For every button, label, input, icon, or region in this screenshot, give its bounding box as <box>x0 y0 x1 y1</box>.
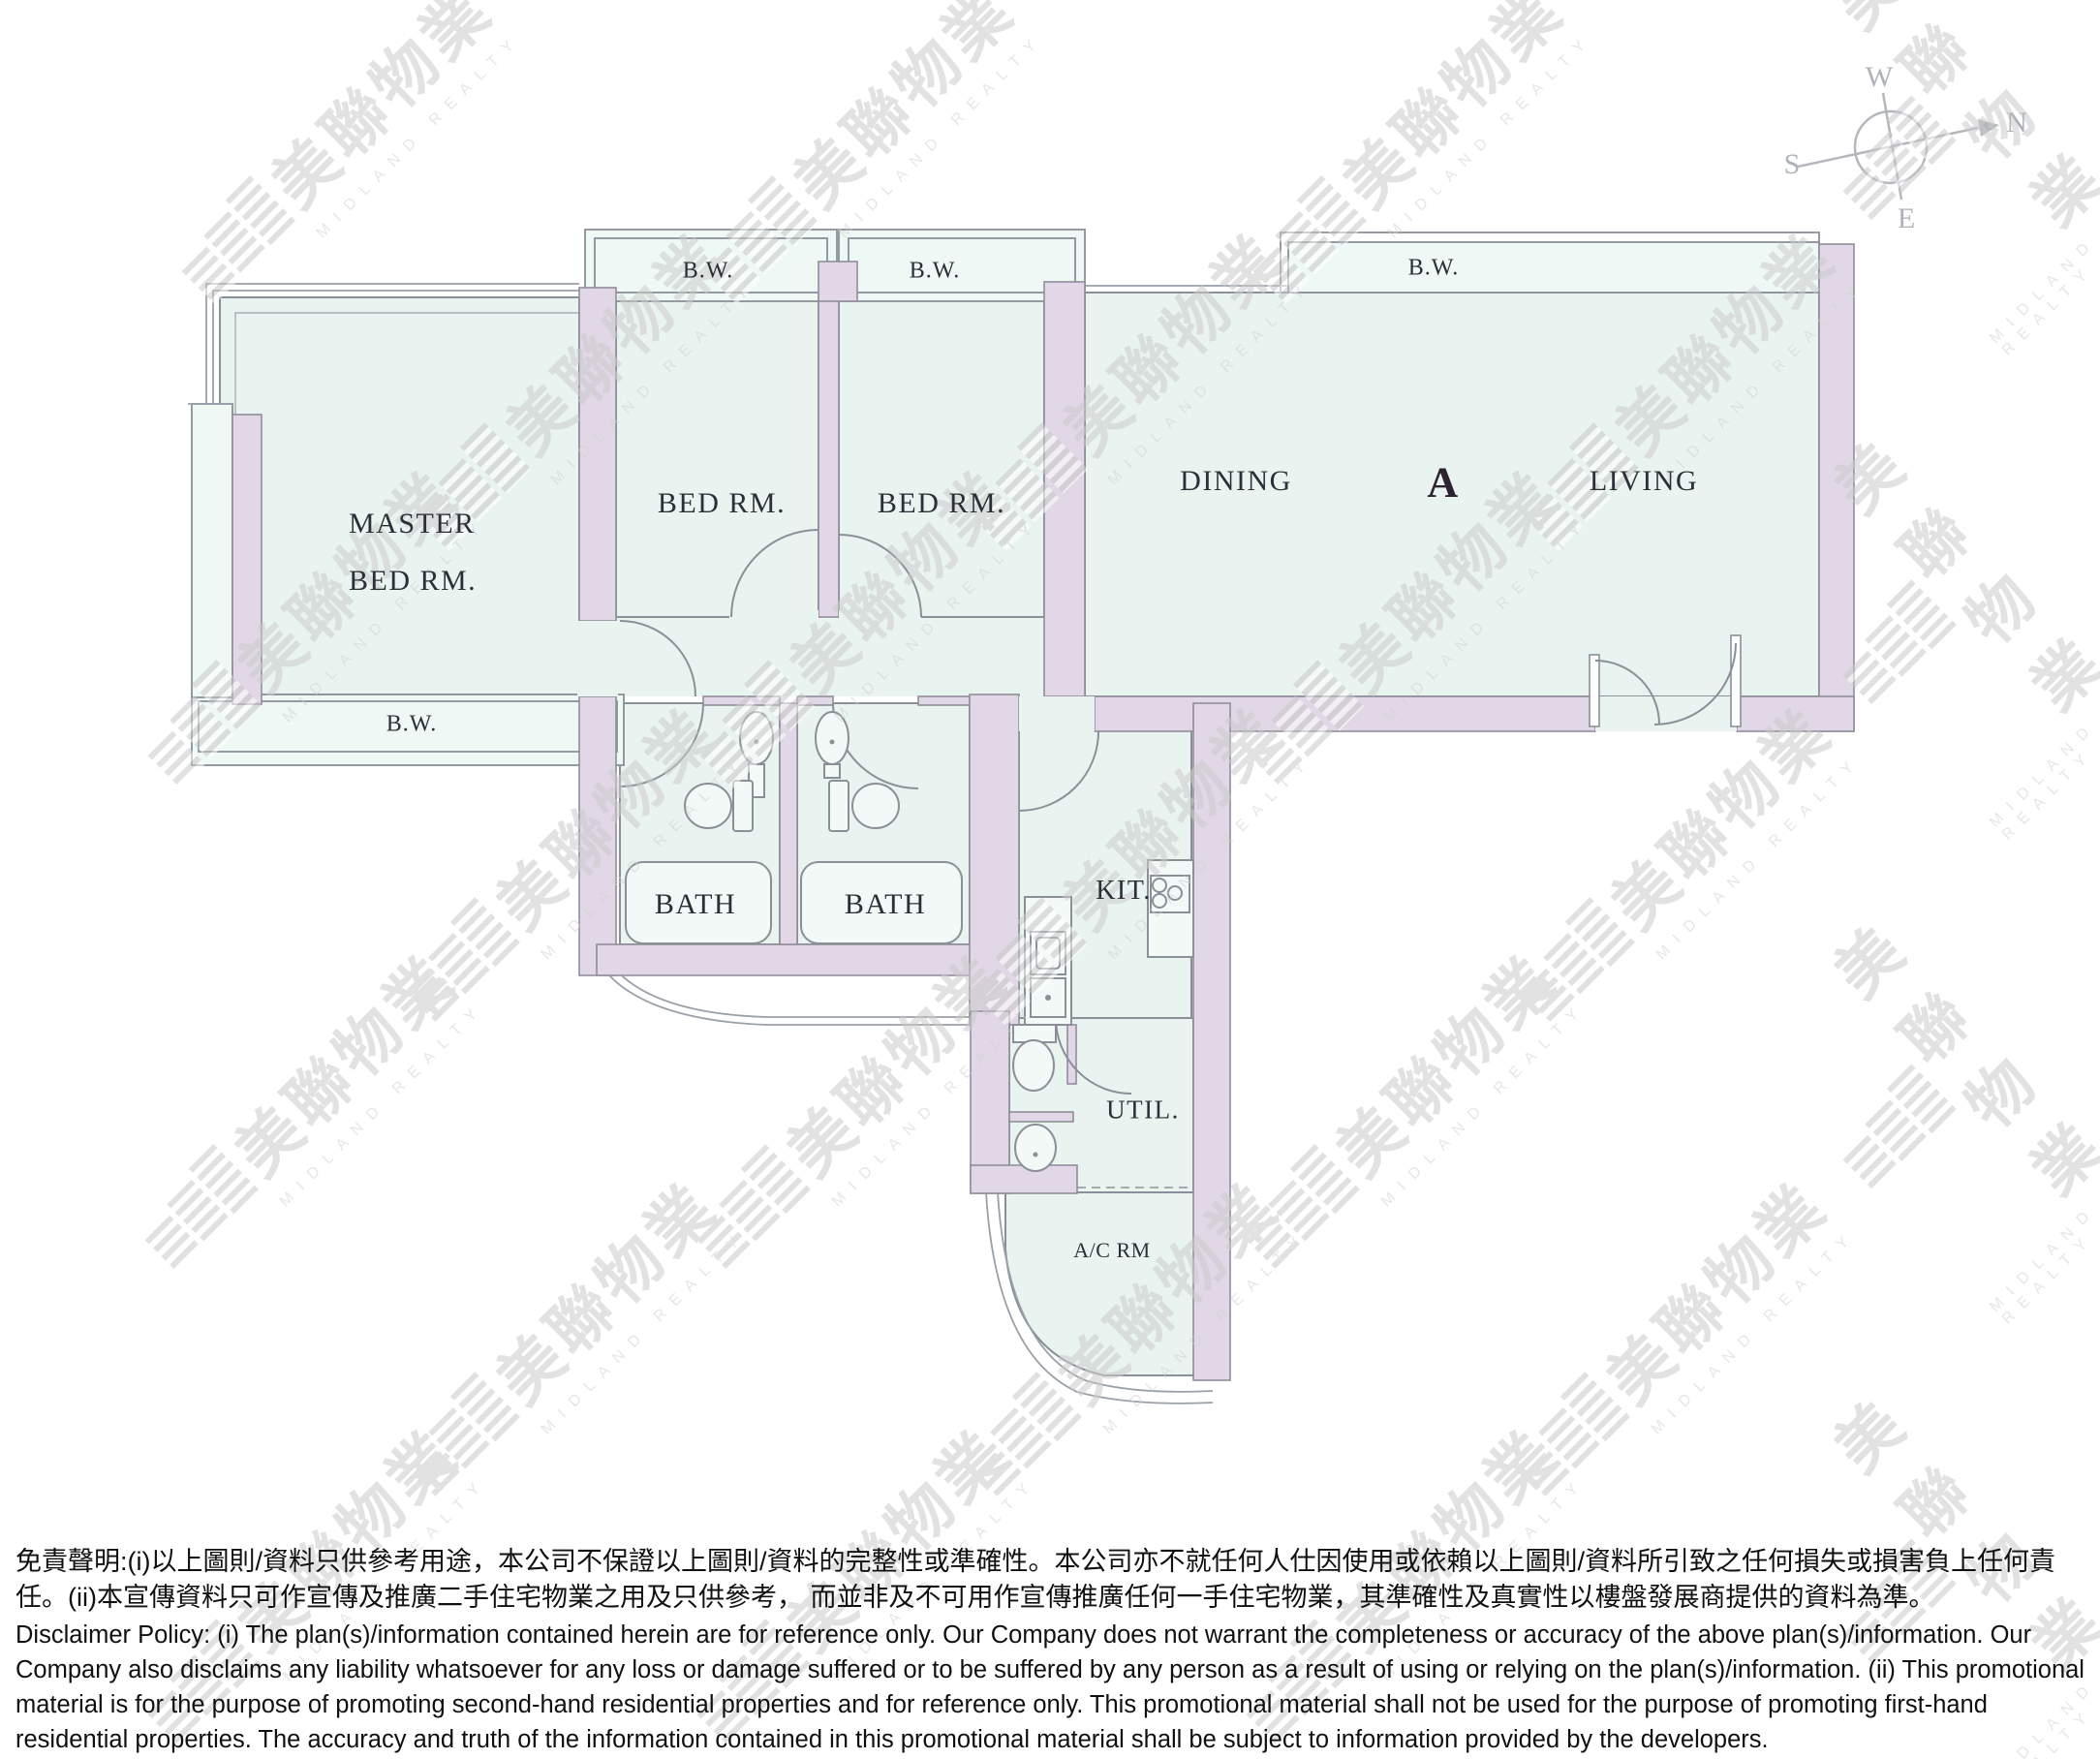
bw-bed1-label: B.W. <box>683 259 733 285</box>
floor-plan-drawing <box>0 0 2100 1759</box>
disclaimer-block: 免責聲明:(i)以上圖則/資料只供參考用途，本公司不保證以上圖則/資料的完整性或… <box>15 1544 2088 1757</box>
bw-living-label: B.W. <box>1408 256 1459 282</box>
bw-bed2-label: B.W. <box>910 259 960 285</box>
compass-west-label: W <box>1866 61 1893 94</box>
compass-east-label: E <box>1898 202 1915 235</box>
bath1-toilet-bowl <box>685 784 731 828</box>
master-bedroom-label-line1: MASTER <box>349 496 477 553</box>
ac-room-floor <box>1005 1192 1213 1375</box>
utility-toilet-bowl <box>1013 1040 1054 1091</box>
bedroom1-label: BED RM. <box>658 487 786 520</box>
bath2-toilet-bowl <box>852 784 899 828</box>
bedroom1-floor <box>616 295 818 617</box>
floor-plan-page: 美聯物業MIDLAND REALTY美聯物業MIDLAND REALTY美聯物業… <box>0 0 2100 1759</box>
compass-south-label: S <box>1784 148 1801 181</box>
compass-north-label: N <box>2006 107 2027 139</box>
bedroom2-label: BED RM. <box>878 487 1005 520</box>
corridor-floor <box>616 615 1085 696</box>
dining-label: DINING <box>1180 465 1292 498</box>
compass <box>1798 93 1999 200</box>
unit-label: A <box>1427 458 1459 508</box>
bath1-toilet-tank <box>733 781 753 831</box>
utility-sink <box>1015 1125 1056 1171</box>
bath1-sink <box>740 712 773 764</box>
compass-sn-line <box>1798 128 1978 167</box>
ac-room-label: A/C RM <box>1073 1238 1150 1263</box>
bath1-label: BATH <box>655 888 736 921</box>
bedroom2-floor <box>839 295 1044 617</box>
bath2-toilet-tank <box>829 781 849 831</box>
master-bedroom-label: MASTER BED RM. <box>349 496 477 609</box>
master-bedroom-label-line2: BED RM. <box>349 553 477 610</box>
disclaimer-chinese: 免責聲明:(i)以上圖則/資料只供參考用途，本公司不保證以上圖則/資料的完整性或… <box>15 1544 2088 1616</box>
living-label: LIVING <box>1590 465 1698 498</box>
disclaimer-english: Disclaimer Policy: (i) The plan(s)/infor… <box>15 1618 2088 1757</box>
kitchen-label: KIT. <box>1096 876 1152 907</box>
compass-north-arrow <box>1978 119 1999 137</box>
utility-label: UTIL. <box>1106 1096 1180 1126</box>
bath2-label: BATH <box>845 888 926 921</box>
bw-master-label: B.W. <box>386 712 437 738</box>
bath2-sink <box>816 712 849 764</box>
